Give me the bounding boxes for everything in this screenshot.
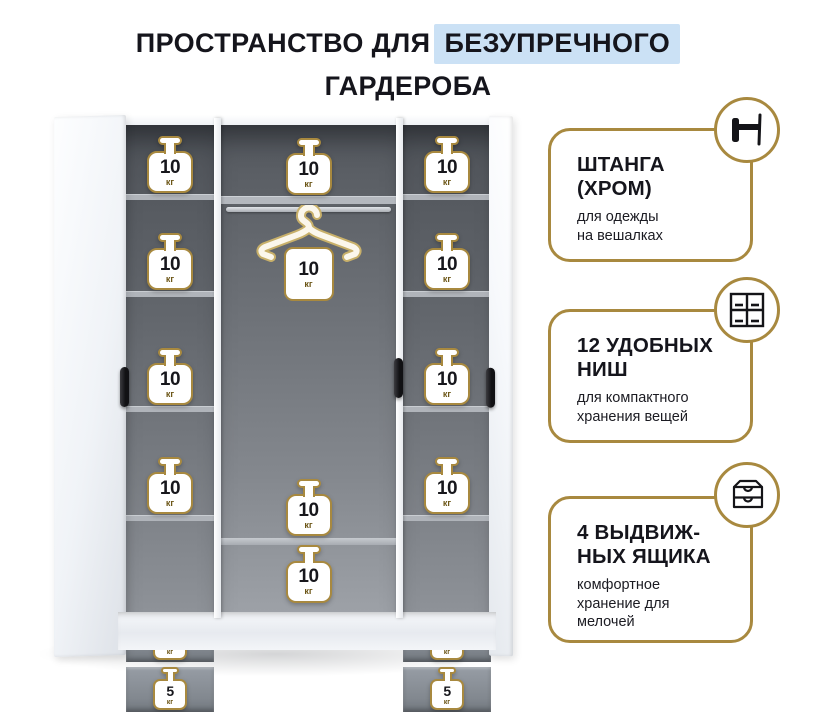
feature-title: 4 ВЫДВИЖ- НЫХ ЯЩИКА <box>577 521 736 569</box>
weight-value: 10 <box>437 158 457 177</box>
weight-unit: кг <box>166 390 174 399</box>
weight-icon: 10 кг <box>424 457 470 515</box>
door-handle <box>486 368 495 408</box>
right-column: 10 кг 10 кг <box>403 125 491 612</box>
weight-icon: 10 кг <box>147 233 193 291</box>
weight-unit: кг <box>304 587 312 596</box>
weight-value: 10 <box>160 479 180 498</box>
feature-desc: для компактного хранения вещей <box>577 389 736 426</box>
weight-value: 10 <box>298 501 318 520</box>
weight-icon: 10 кг <box>286 479 332 537</box>
niche-cell: 10 кг <box>126 412 214 521</box>
hanger-icon: 10 кг <box>247 205 371 315</box>
title-prefix: ПРОСТРАНСТВО ДЛЯ <box>136 28 431 58</box>
weight-icon: 10 кг <box>424 348 470 406</box>
weight-value: 10 <box>298 567 318 586</box>
weight-unit: кг <box>443 390 451 399</box>
drawer-front: 5 кг <box>126 667 214 712</box>
weight-icon: 10 кг <box>424 233 470 291</box>
niche-cell: 10 кг <box>126 200 214 297</box>
weight-unit: кг <box>443 499 451 508</box>
niche-cell: 10 кг <box>403 412 491 521</box>
weight-icon: 10 кг <box>286 545 332 603</box>
feature-card-drawers: 4 ВЫДВИЖ- НЫХ ЯЩИКА комфортное хранение … <box>548 496 753 643</box>
weight-value: 10 <box>437 370 457 389</box>
middle-bottom-shelf <box>221 538 396 545</box>
weight-icon: 10 кг <box>286 138 332 196</box>
right-column-niches: 10 кг 10 кг <box>403 125 491 612</box>
title-highlight: БЕЗУПРЕЧНОГО <box>434 24 680 64</box>
weight-unit: кг <box>166 275 174 284</box>
niche-cell: 10 кг <box>403 125 491 200</box>
feature-bubble <box>714 462 780 528</box>
weight-unit: кг <box>304 521 312 530</box>
page-title: ПРОСТРАНСТВО ДЛЯБЕЗУПРЕЧНОГО ГАРДЕРОБА <box>0 24 816 103</box>
drawer-front: 5 кг <box>403 667 491 712</box>
weight-unit: кг <box>304 280 312 289</box>
weight-value: 10 <box>160 370 180 389</box>
weight-value: 10 <box>160 255 180 274</box>
feature-title: 12 УДОБНЫХ НИШ <box>577 334 736 382</box>
weight-value: 10 <box>160 158 180 177</box>
open-door-right <box>489 116 513 657</box>
weight-icon: 10 кг <box>147 348 193 406</box>
title-line-1: ПРОСТРАНСТВО ДЛЯБЕЗУПРЕЧНОГО <box>0 24 816 64</box>
left-column-niches: 10 кг 10 кг <box>126 125 214 612</box>
niche-cell: 10 кг <box>126 125 214 200</box>
weight-icon: 5 кг <box>430 667 464 711</box>
middle-bottom-compartment: 10 кг <box>221 545 396 610</box>
weight-value: 5 <box>443 684 450 698</box>
niches-icon <box>729 292 765 328</box>
door-handle <box>120 367 129 407</box>
feature-bubble <box>714 277 780 343</box>
niche-cell: 10 кг <box>126 297 214 412</box>
middle-left-door-edge <box>214 118 221 618</box>
weight-icon: 10 кг <box>147 136 193 194</box>
weight-icon: 10 кг <box>147 457 193 515</box>
door-handle <box>394 358 403 398</box>
title-line-2: ГАРДЕРОБА <box>0 70 816 102</box>
middle-section: 10 кг <box>221 125 396 612</box>
feature-bubble <box>714 97 780 163</box>
weight-icon: 10 кг <box>424 136 470 194</box>
weight-icon: 10 кг <box>284 247 334 301</box>
hanging-area: 10 кг 10 кг <box>221 212 396 538</box>
weight-unit: кг <box>166 499 174 508</box>
weight-value: 10 <box>298 260 318 279</box>
weight-unit: кг <box>166 178 174 187</box>
weight-value: 10 <box>437 255 457 274</box>
niche-cell: 10 кг <box>403 297 491 412</box>
weight-value: 10 <box>437 479 457 498</box>
weight-unit: кг <box>443 178 451 187</box>
weight-unit: кг <box>443 275 451 284</box>
weight-value: 5 <box>166 684 173 698</box>
cabinet-base <box>118 612 496 650</box>
feature-title: ШТАНГА (ХРОМ) <box>577 153 736 201</box>
feature-desc: комфортное хранение для мелочей <box>577 576 736 631</box>
left-column: 10 кг 10 кг <box>126 125 214 612</box>
feature-desc: для одежды на вешалках <box>577 208 736 245</box>
weight-unit: кг <box>304 180 312 189</box>
weight-value: 10 <box>298 160 318 179</box>
rod-icon <box>728 111 766 149</box>
weight-icon: 5 кг <box>153 667 187 711</box>
niche-cell: 10 кг <box>403 200 491 297</box>
drawers-icon <box>727 477 767 513</box>
middle-top-shelf: 10 кг <box>221 125 396 204</box>
wardrobe-render: 10 кг 10 кг <box>40 112 532 672</box>
open-door-left <box>54 115 126 657</box>
